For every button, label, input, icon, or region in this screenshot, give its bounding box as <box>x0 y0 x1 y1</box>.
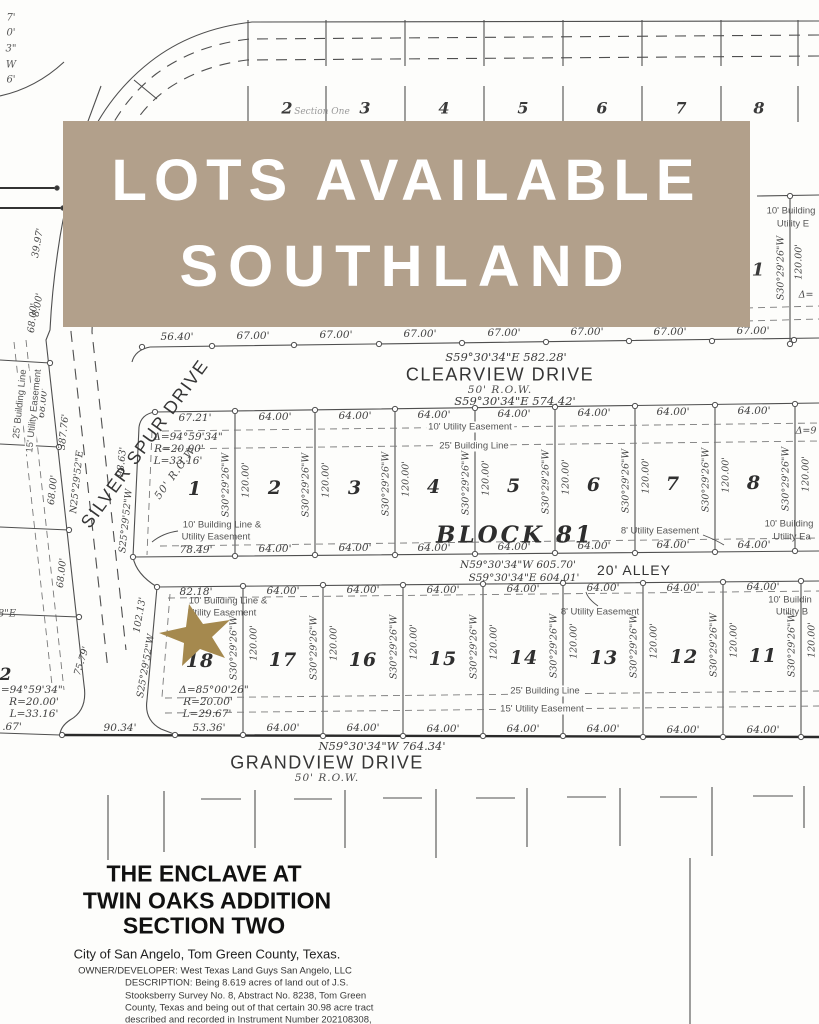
plat-map-page: 2 3 4 5 6 7 8 Section One 1 10' Building… <box>0 0 819 1024</box>
star-icon <box>0 0 819 1024</box>
